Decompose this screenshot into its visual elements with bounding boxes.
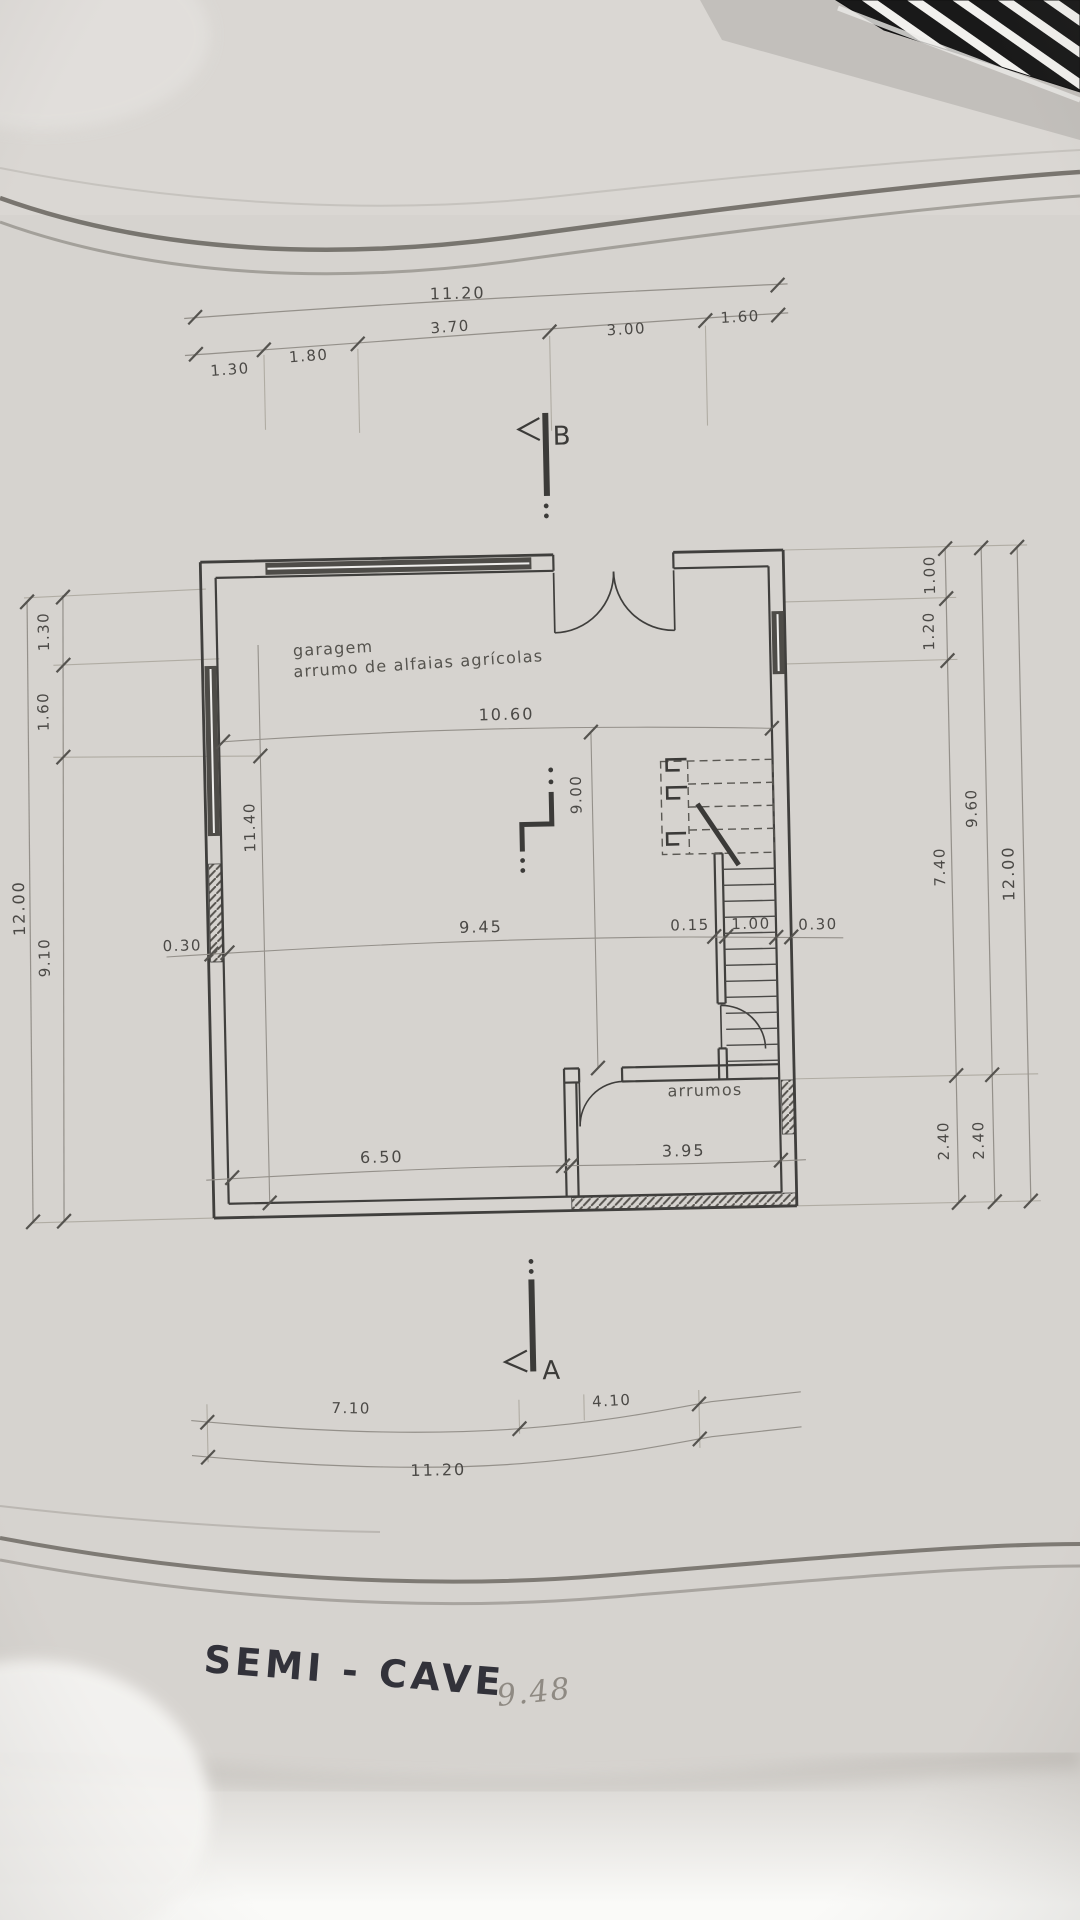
photo-vignette: [0, 0, 1080, 1920]
photo-of-floor-plan-sheet: 11.20 1.30 1.80 3.70 3.00 1.60 1.30 1.60…: [0, 0, 1080, 1920]
floor-plan-drawing: 11.20 1.30 1.80 3.70 3.00 1.60 1.30 1.60…: [0, 0, 1080, 1920]
